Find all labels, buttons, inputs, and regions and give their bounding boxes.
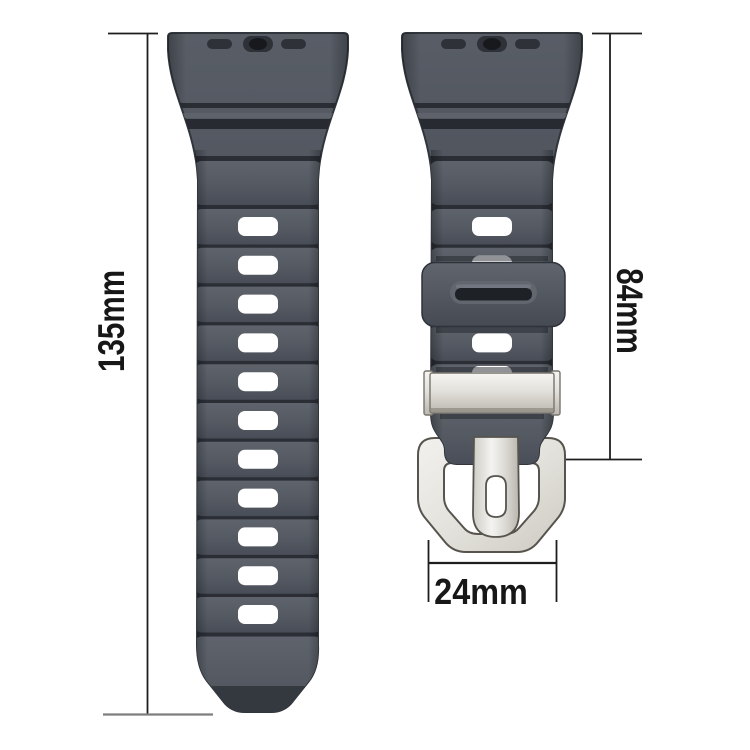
metal-keeper-bar: [430, 373, 554, 413]
diagram-canvas: [0, 0, 750, 750]
left-length-label: 135mm: [91, 271, 131, 370]
rubber-keeper: [422, 263, 565, 327]
right-strap: [396, 33, 592, 552]
rubber-keeper-slot-rim: [456, 285, 531, 289]
metal-keeper-bottom-edge: [431, 408, 553, 412]
product-dimension-diagram: 135mm 84mm 24mm: [0, 0, 750, 750]
rubber-keeper-slot-core: [455, 288, 532, 301]
right-length-label: 84mm: [610, 261, 650, 360]
body-side-shade: [195, 150, 321, 716]
left-strap-surface: [158, 33, 364, 720]
left-strap: [158, 33, 364, 720]
right-length-dimension: [566, 34, 642, 460]
buckle-prong: [473, 437, 519, 537]
metal-keeper: [424, 371, 560, 415]
width-label: 24mm: [418, 572, 544, 612]
